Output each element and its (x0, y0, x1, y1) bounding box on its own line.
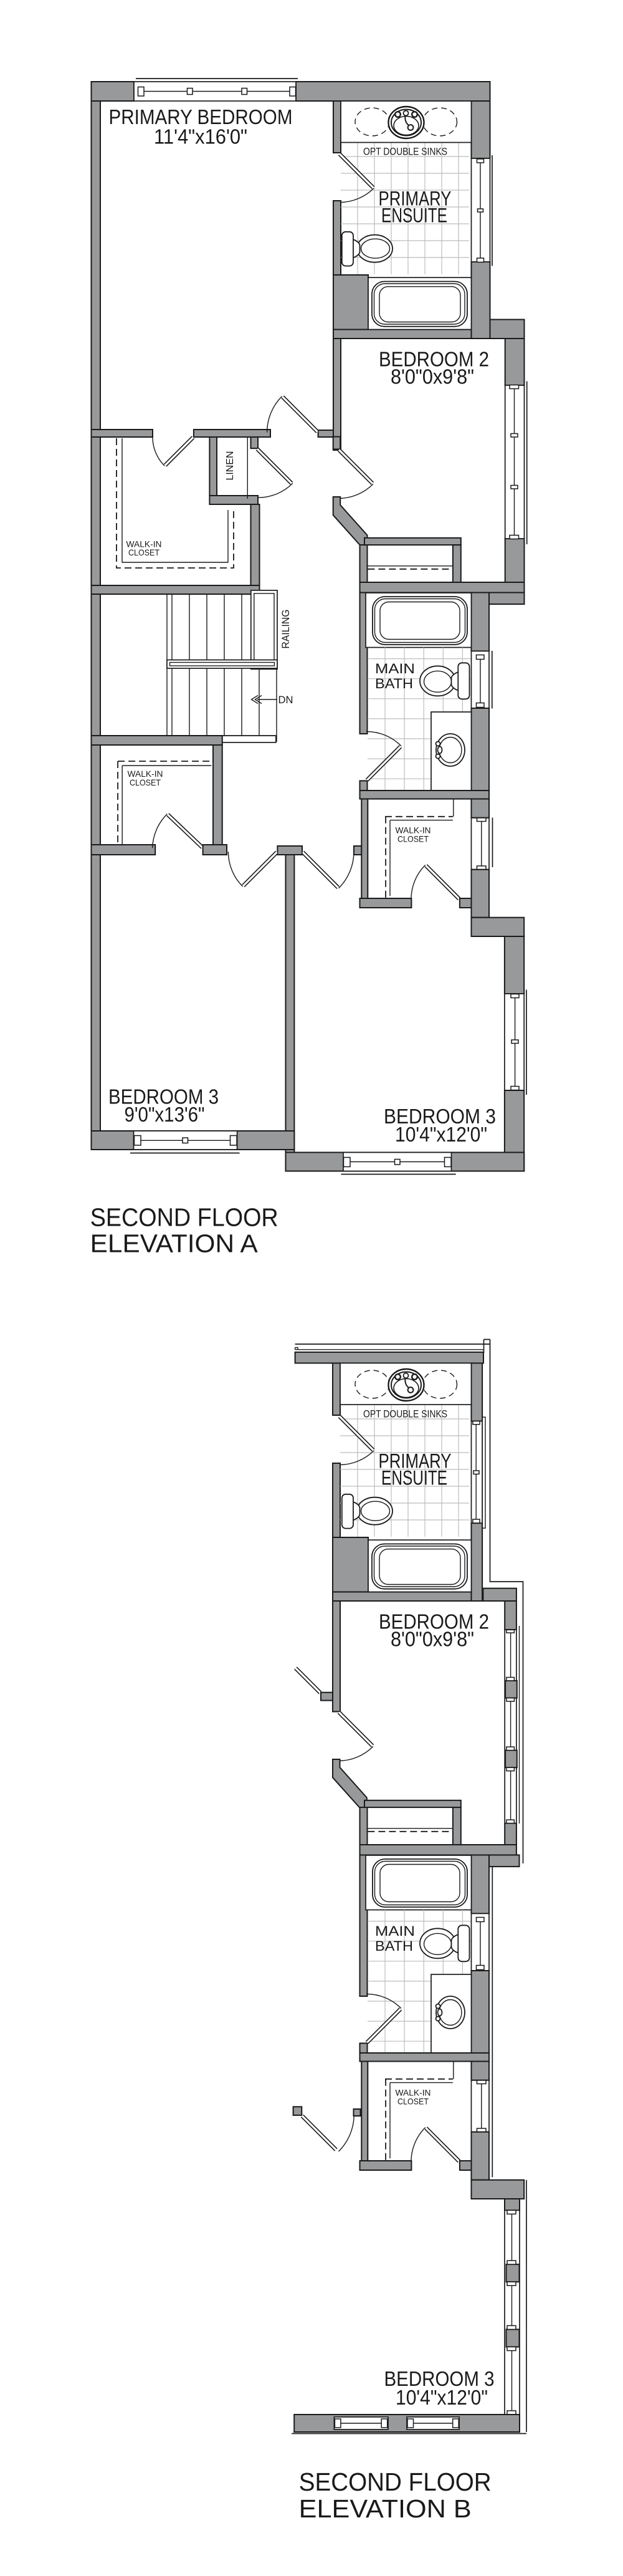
svg-text:SECOND FLOOR: SECOND FLOOR (90, 1203, 278, 1232)
svg-text:DN: DN (278, 694, 293, 706)
svg-text:ELEVATION A: ELEVATION A (90, 1229, 259, 1258)
svg-text:ENSUITE: ENSUITE (381, 1467, 447, 1489)
svg-text:OPT DOUBLE SINKS: OPT DOUBLE SINKS (363, 146, 447, 158)
svg-text:8'0"0x9'8": 8'0"0x9'8" (391, 1628, 474, 1651)
svg-text:CLOSET: CLOSET (397, 834, 429, 844)
svg-text:BATH: BATH (375, 676, 413, 691)
svg-text:BATH: BATH (375, 1938, 413, 1954)
svg-text:MAIN: MAIN (375, 1923, 415, 1939)
svg-text:SECOND FLOOR: SECOND FLOOR (299, 2468, 492, 2496)
svg-text:CLOSET: CLOSET (397, 2097, 429, 2107)
svg-text:LINEN: LINEN (225, 451, 235, 481)
svg-text:10'4"x12'0": 10'4"x12'0" (396, 2386, 488, 2409)
svg-text:8'0"0x9'8": 8'0"0x9'8" (391, 365, 474, 388)
svg-text:ELEVATION B: ELEVATION B (299, 2494, 472, 2523)
svg-text:9'0"x13'6": 9'0"x13'6" (125, 1103, 205, 1126)
svg-text:CLOSET: CLOSET (130, 777, 161, 787)
svg-text:RAILING: RAILING (280, 610, 292, 649)
svg-text:10'4"x12'0": 10'4"x12'0" (395, 1123, 487, 1146)
svg-text:ENSUITE: ENSUITE (381, 204, 447, 227)
svg-text:11'4"x16'0": 11'4"x16'0" (154, 125, 247, 148)
svg-text:OPT DOUBLE SINKS: OPT DOUBLE SINKS (363, 1408, 447, 1420)
svg-text:CLOSET: CLOSET (128, 547, 159, 557)
svg-text:MAIN: MAIN (375, 661, 415, 676)
